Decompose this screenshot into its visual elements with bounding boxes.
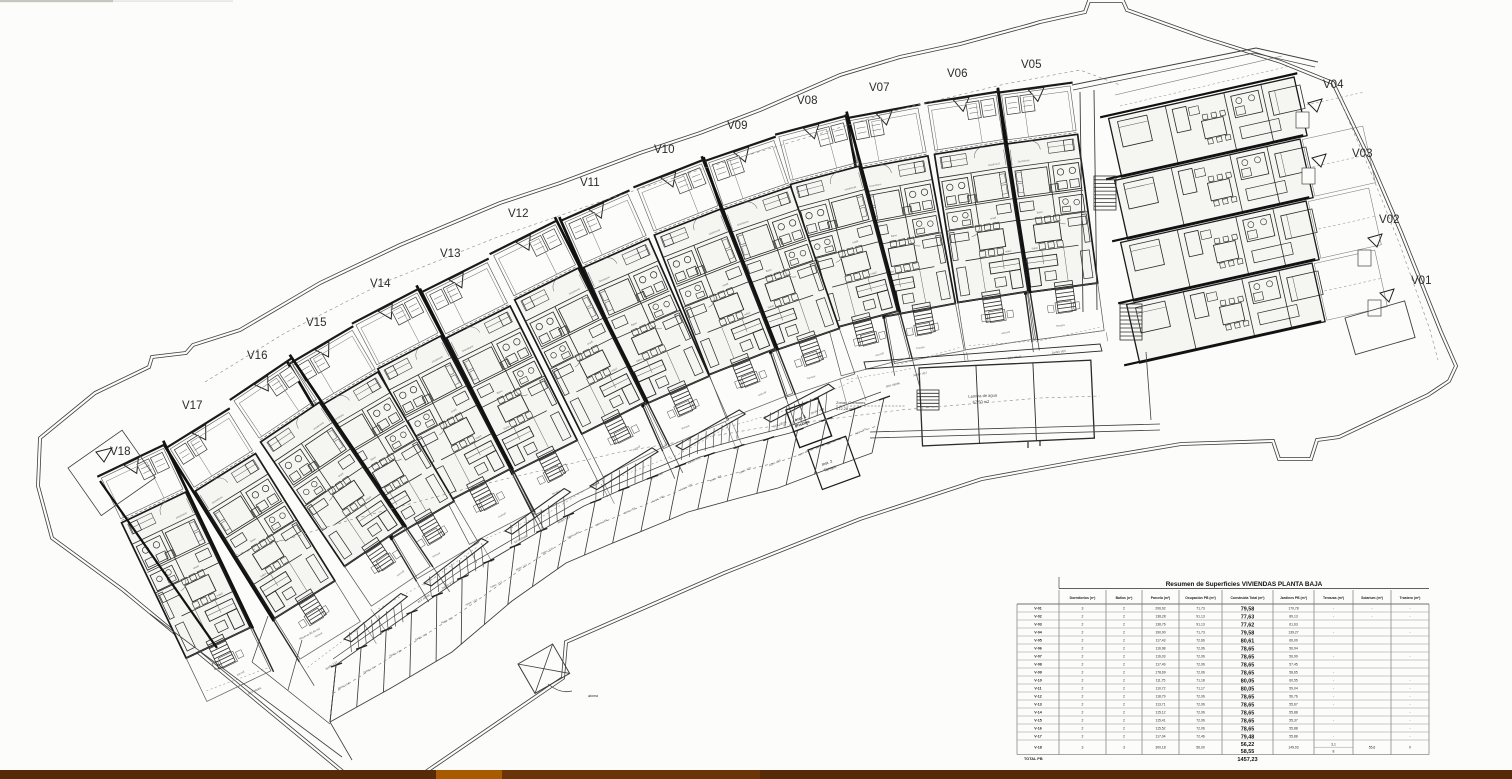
svg-text:2: 2 [1082,631,1084,635]
svg-text:Terrazas (m²): Terrazas (m²) [1323,596,1344,600]
svg-text:-: - [1333,703,1334,707]
svg-text:61,63: 61,63 [1289,623,1298,627]
svg-text:V-05: V-05 [1034,639,1041,643]
svg-text:Trastero (m²): Trastero (m²) [1400,596,1421,600]
svg-text:170,78: 170,78 [1288,607,1298,611]
svg-text:80,61: 80,61 [1241,638,1255,644]
svg-text:V-16: V-16 [1034,727,1041,731]
svg-text:56,22: 56,22 [1241,742,1255,748]
svg-text:72,06: 72,06 [1196,711,1205,715]
svg-text:78,65: 78,65 [1241,654,1255,660]
svg-text:V05: V05 [1021,59,1041,71]
svg-text:78,65: 78,65 [1241,662,1255,668]
svg-text:2: 2 [1082,719,1084,723]
svg-text:115,52: 115,52 [1155,727,1165,731]
svg-text:V08: V08 [797,95,817,107]
svg-text:-: - [1371,607,1372,611]
svg-text:-: - [1333,695,1334,699]
svg-text:117,43: 117,43 [1155,639,1165,643]
svg-text:78,65: 78,65 [1241,718,1255,724]
svg-text:2: 2 [1123,711,1125,715]
svg-text:138,28: 138,28 [1155,615,1165,619]
svg-text:2: 2 [1123,695,1125,699]
svg-text:2: 2 [1123,719,1125,723]
svg-text:-: - [1333,631,1334,635]
svg-text:79,58: 79,58 [1241,630,1255,636]
svg-text:Aparc. V05: Aparc. V05 [680,482,694,491]
svg-text:-: - [1333,615,1334,619]
svg-text:72,06: 72,06 [1196,719,1205,723]
svg-text:-: - [1409,631,1410,635]
svg-text:Terraza: Terraza [235,669,245,677]
svg-text:2: 2 [1082,711,1084,715]
svg-text:72,06: 72,06 [1196,671,1205,675]
svg-text:80,05: 80,05 [1241,678,1255,684]
svg-text:72,06: 72,06 [1196,695,1205,699]
svg-text:-: - [1333,679,1334,683]
svg-text:-: - [1333,719,1334,723]
svg-text:Aparc. V01: Aparc. V01 [854,426,868,435]
svg-text:-: - [1409,735,1410,739]
svg-text:78,65: 78,65 [1241,710,1255,716]
svg-text:56,99: 56,99 [1289,655,1298,659]
svg-text:80,05: 80,05 [1241,686,1255,692]
svg-text:2: 2 [1123,639,1125,643]
svg-text:-: - [1409,607,1410,611]
svg-text:117,49: 117,49 [1155,663,1165,667]
svg-text:115,12: 115,12 [1155,711,1165,715]
svg-text:-: - [1409,695,1410,699]
svg-text:2: 2 [1082,623,1084,627]
svg-text:72,66: 72,66 [1196,639,1205,643]
svg-text:V11: V11 [580,177,600,189]
svg-text:V-12: V-12 [1034,695,1041,699]
svg-text:V12: V12 [508,208,528,220]
svg-text:Lamina de agua: Lamina de agua [968,392,998,398]
svg-text:115,41: 115,41 [1155,719,1165,723]
svg-text:71,17: 71,17 [1196,687,1205,691]
svg-text:56,76: 56,76 [1289,695,1298,699]
svg-text:2: 2 [1082,703,1084,707]
svg-text:V-08: V-08 [1034,663,1041,667]
svg-text:55,88: 55,88 [1289,727,1298,731]
svg-text:2: 2 [1082,695,1084,699]
svg-text:Jardin V08: Jardin V08 [885,381,900,389]
svg-text:-: - [1409,719,1410,723]
svg-text:-: - [1409,711,1410,715]
svg-text:-: - [1333,655,1334,659]
svg-text:-: - [1409,727,1410,731]
svg-text:136,76: 136,76 [1155,623,1165,627]
svg-text:118,79: 118,79 [1155,695,1165,699]
svg-text:2: 2 [1123,655,1125,659]
svg-text:V-09: V-09 [1034,671,1041,675]
svg-text:2: 2 [1082,687,1084,691]
svg-text:190,90: 190,90 [1155,631,1165,635]
svg-text:2: 2 [1082,663,1084,667]
svg-text:V-18: V-18 [1034,746,1041,750]
svg-text:72,06: 72,06 [1196,727,1205,731]
svg-text:116,03: 116,03 [1155,655,1165,659]
svg-text:2: 2 [1123,623,1125,627]
svg-text:78,65: 78,65 [1241,726,1255,732]
svg-text:300,18: 300,18 [1155,746,1165,750]
svg-text:2: 2 [1123,663,1125,667]
svg-text:●toma: ●toma [588,694,598,698]
svg-text:-: - [1333,735,1334,739]
svg-text:V03: V03 [1352,148,1372,160]
svg-text:Aparc. V03: Aparc. V03 [738,465,752,474]
svg-text:V-17: V-17 [1034,735,1041,739]
svg-text:79,48: 79,48 [1241,734,1255,740]
svg-text:V-15: V-15 [1034,719,1041,723]
svg-text:-: - [1333,687,1334,691]
svg-text:206,92: 206,92 [1155,607,1165,611]
svg-text:77,63: 77,63 [1241,614,1255,620]
svg-text:55,37: 55,37 [1289,719,1298,723]
svg-text:3: 3 [1082,607,1084,611]
svg-text:2: 2 [1082,671,1084,675]
svg-text:56,94: 56,94 [1289,647,1298,651]
svg-text:2: 2 [1123,671,1125,675]
svg-text:117,04: 117,04 [1155,735,1165,739]
svg-text:Terraza: Terraza [680,423,690,430]
svg-text:Construida Total (m²): Construida Total (m²) [1230,596,1264,600]
svg-text:2: 2 [1082,679,1084,683]
svg-text:Aparc. V17: Aparc. V17 [363,665,377,674]
svg-text:3: 3 [1123,746,1125,750]
svg-text:Baños (nº): Baños (nº) [1116,596,1133,600]
svg-text:78,65: 78,65 [1241,646,1255,652]
svg-text:Terraza: Terraza [1001,330,1011,335]
svg-text:71,73: 71,73 [1196,631,1205,635]
svg-text:55,6: 55,6 [1369,746,1376,750]
svg-text:V18: V18 [110,446,130,458]
svg-text:-: - [1409,615,1410,619]
svg-text:Aparc. V10: Aparc. V10 [541,546,555,555]
svg-text:58,65: 58,65 [1289,671,1298,675]
svg-text:Aparc. V07: Aparc. V07 [623,506,637,515]
svg-text:2: 2 [1082,647,1084,651]
svg-text:Parcela (m²): Parcela (m²) [1151,596,1170,600]
svg-text:78,65: 78,65 [1241,694,1255,700]
svg-text:2: 2 [1123,727,1125,731]
svg-text:Terraza: Terraza [395,569,405,577]
svg-text:2: 2 [1123,735,1125,739]
svg-text:91,13: 91,13 [1196,623,1205,627]
svg-text:Jardin V18: Jardin V18 [247,686,262,696]
svg-text:91,13: 91,13 [1196,615,1205,619]
svg-text:55,67: 55,67 [1289,703,1298,707]
svg-text:Aparc. V13: Aparc. V13 [465,597,479,606]
svg-text:78,65: 78,65 [1241,670,1255,676]
svg-text:71,18: 71,18 [1196,679,1205,683]
svg-text:-: - [1409,679,1410,683]
svg-text:3,1: 3,1 [1331,743,1336,747]
svg-text:Jardin V16: Jardin V16 [416,593,430,605]
svg-text:V-06: V-06 [1034,647,1041,651]
svg-text:Aparc. V16: Aparc. V16 [388,648,402,657]
svg-text:Ocupación PB (m²): Ocupación PB (m²) [1185,596,1216,600]
svg-text:V13: V13 [440,248,460,260]
svg-text:V-11: V-11 [1034,687,1041,691]
svg-text:72,06: 72,06 [1196,703,1205,707]
svg-text:2: 2 [1082,639,1084,643]
svg-text:139,27: 139,27 [1288,631,1298,635]
svg-text:Aparc. V11: Aparc. V11 [515,562,529,571]
svg-text:V-01: V-01 [1034,607,1041,611]
svg-text:60,55: 60,55 [1289,679,1298,683]
svg-text:72,06: 72,06 [1196,663,1205,667]
svg-text:V04: V04 [1323,79,1344,91]
svg-text:V-14: V-14 [1034,711,1041,715]
svg-text:Dormitorios (nº): Dormitorios (nº) [1070,596,1096,600]
svg-text:Terraza: Terraza [497,511,507,519]
svg-text:72,06: 72,06 [1196,655,1205,659]
svg-text:Aparc. V04: Aparc. V04 [709,474,723,483]
svg-text:Solarium (m²): Solarium (m²) [1361,596,1383,600]
svg-text:2: 2 [1123,607,1125,611]
svg-text:78,65: 78,65 [1241,702,1255,708]
svg-text:77,62: 77,62 [1241,622,1255,628]
svg-text:79,58: 79,58 [1241,606,1255,612]
svg-text:3: 3 [1082,746,1084,750]
svg-text:71,73: 71,73 [1196,607,1205,611]
svg-text:Resumen de Superficies VIVIEND: Resumen de Superficies VIVIENDAS PLANTA … [1166,581,1323,588]
svg-text:V-13: V-13 [1034,703,1041,707]
svg-text:V-04: V-04 [1034,631,1041,635]
svg-text:V02: V02 [1379,214,1399,226]
svg-text:Aparc. V18: Aparc. V18 [337,681,351,690]
svg-text:55,88: 55,88 [1289,711,1298,715]
svg-text:Terraza: Terraza [631,444,641,452]
svg-text:1457,23: 1457,23 [1237,757,1257,763]
svg-text:72,46: 72,46 [1196,735,1205,739]
svg-text:Terraza: Terraza [806,374,816,381]
svg-text:55,88: 55,88 [1289,735,1298,739]
svg-text:0: 0 [1409,746,1411,750]
svg-text:66,09: 66,09 [1289,639,1298,643]
svg-text:V-10: V-10 [1034,679,1041,683]
svg-text:2: 2 [1082,615,1084,619]
svg-text:V07: V07 [869,82,889,94]
svg-text:111,75: 111,75 [1156,679,1166,683]
svg-text:Aparc. V15: Aparc. V15 [414,632,428,641]
svg-text:Aparc. V01: Aparc. V01 [826,437,840,446]
svg-text:178,69: 178,69 [1155,671,1165,675]
svg-text:56,00: 56,00 [1196,746,1205,750]
svg-text:72,06: 72,06 [1196,647,1205,651]
svg-text:-: - [1333,607,1334,611]
svg-text:149,93: 149,93 [1288,746,1298,750]
svg-text:110,72: 110,72 [1155,687,1165,691]
svg-text:Aparc. V12: Aparc. V12 [490,580,504,589]
svg-text:113,71: 113,71 [1155,703,1165,707]
svg-text:Terraza: Terraza [916,345,926,351]
svg-text:59,04: 59,04 [1289,687,1298,691]
svg-text:V10: V10 [654,144,674,156]
svg-text:2: 2 [1123,703,1125,707]
svg-text:Terraza: Terraza [757,390,767,397]
svg-text:Aparc. V14: Aparc. V14 [440,615,454,624]
svg-text:Terraza: Terraza [431,551,441,559]
svg-text:V17: V17 [182,400,202,412]
svg-text:-: - [1371,615,1372,619]
svg-text:V-07: V-07 [1034,655,1041,659]
svg-text:116,98: 116,98 [1155,647,1165,651]
svg-text:2: 2 [1123,631,1125,635]
svg-text:2: 2 [1082,727,1084,731]
svg-text:Aparc. V02: Aparc. V02 [768,458,782,467]
svg-text:2: 2 [1082,735,1084,739]
svg-text:2: 2 [1123,687,1125,691]
svg-text:-: - [1409,687,1410,691]
svg-text:Jardines PB (m²): Jardines PB (m²) [1280,596,1307,600]
svg-text:2: 2 [1123,679,1125,683]
svg-text:89,13: 89,13 [1289,615,1298,619]
svg-text:8: 8 [1333,749,1335,753]
svg-text:2: 2 [1082,655,1084,659]
svg-text:V09: V09 [727,120,747,132]
svg-text:V06: V06 [947,68,967,80]
svg-text:Aparc. V08: Aparc. V08 [595,518,609,527]
svg-text:Terraza: Terraza [874,351,884,357]
svg-text:TOTAL PB: TOTAL PB [1024,757,1043,761]
svg-text:Aparc. V06: Aparc. V06 [651,494,665,503]
svg-text:Zonas Comunes: Zonas Comunes [836,400,865,405]
svg-text:V-02: V-02 [1034,615,1041,619]
svg-text:-: - [1409,703,1410,707]
svg-text:2: 2 [1123,647,1125,651]
svg-text:Jardin V07: Jardin V07 [913,371,928,378]
svg-text:-: - [1409,655,1410,659]
svg-text:-: - [1333,671,1334,675]
svg-text:V16: V16 [247,350,267,362]
svg-text:57,45: 57,45 [1289,663,1298,667]
svg-text:V15: V15 [306,317,326,329]
svg-text:Terraza: Terraza [1056,323,1066,328]
svg-text:2: 2 [1123,615,1125,619]
svg-text:V-03: V-03 [1034,623,1041,627]
svg-text:Aparc. V09: Aparc. V09 [567,530,581,539]
